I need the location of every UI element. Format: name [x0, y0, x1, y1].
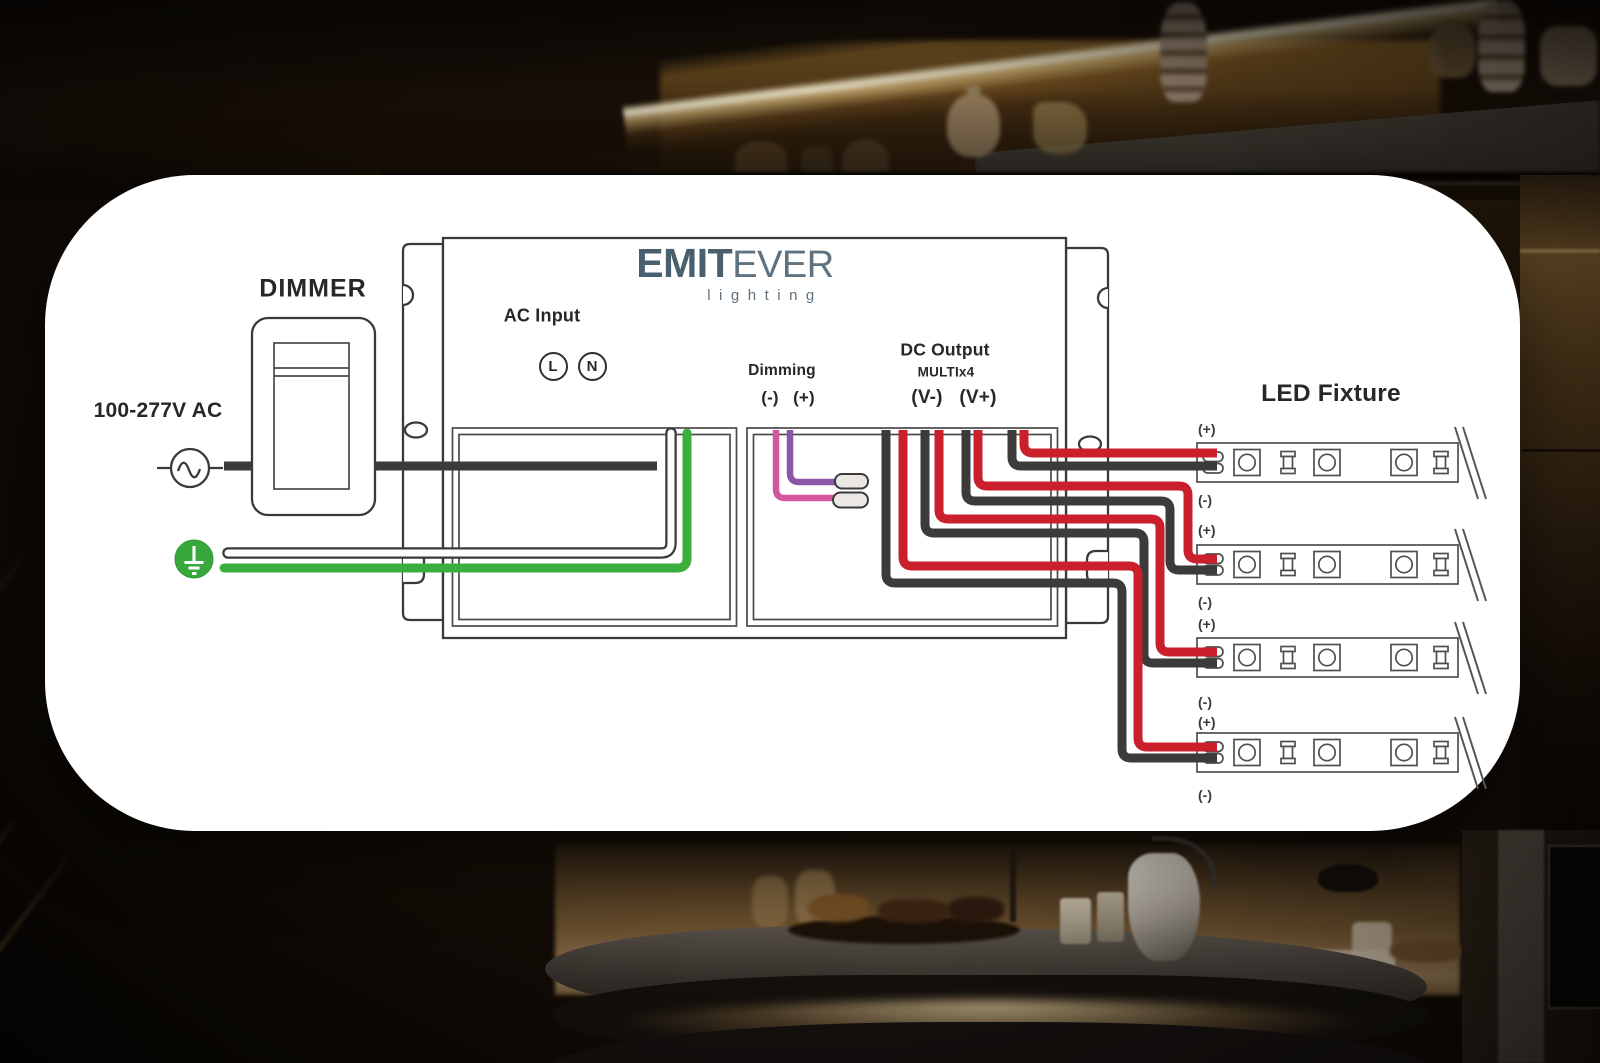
- brand-logo: EMITEVER lighting: [575, 243, 895, 303]
- brand-logo-bold: EMIT: [636, 240, 732, 286]
- led-strip-4: [1197, 717, 1486, 789]
- strip2-pos-label: (+): [1198, 522, 1216, 538]
- dc-vneg-label: (V-): [911, 387, 942, 409]
- led-fixture-title: LED Fixture: [1261, 380, 1401, 408]
- ac-input-label: AC Input: [504, 306, 581, 327]
- dimmer-switch: [252, 318, 375, 515]
- wire-nut: [835, 474, 868, 489]
- screenshot-root: DIMMER 100-277V AC EMITEVER lighting AC …: [0, 0, 1600, 1063]
- brand-tagline: lighting: [605, 288, 925, 303]
- strip3-pos-label: (+): [1198, 616, 1216, 632]
- strip2-neg-label: (-): [1198, 594, 1212, 610]
- bracket-notch: [1098, 288, 1108, 308]
- led-strip-2: [1197, 529, 1486, 601]
- dimmer-label: DIMMER: [259, 275, 366, 304]
- ground-icon: [175, 540, 213, 578]
- dimming-neg-label: (-): [761, 388, 779, 408]
- brand-logo-light: EVER: [732, 244, 833, 286]
- led-strip-1: [1197, 427, 1486, 499]
- terminal-n: N: [578, 352, 607, 381]
- wire-nut: [833, 493, 868, 508]
- wiring-diagram: [0, 0, 1600, 1063]
- strip4-pos-label: (+): [1198, 714, 1216, 730]
- led-strip-3: [1197, 622, 1486, 694]
- bracket-notch: [403, 285, 413, 305]
- dimming-label: Dimming: [748, 362, 816, 380]
- ac-source-icon: [157, 449, 223, 487]
- dc-vpos-label: (V+): [959, 387, 996, 409]
- dimming-pos-label: (+): [793, 388, 815, 408]
- supply-voltage-label: 100-277V AC: [94, 399, 223, 423]
- terminal-l: L: [539, 352, 568, 381]
- strip1-pos-label: (+): [1198, 421, 1216, 437]
- bracket-hole: [405, 423, 427, 438]
- dc-output-label: DC Output: [900, 340, 989, 361]
- strip3-neg-label: (-): [1198, 694, 1212, 710]
- dc-output-model: MULTIx4: [918, 365, 975, 380]
- strip4-neg-label: (-): [1198, 787, 1212, 803]
- strip1-neg-label: (-): [1198, 492, 1212, 508]
